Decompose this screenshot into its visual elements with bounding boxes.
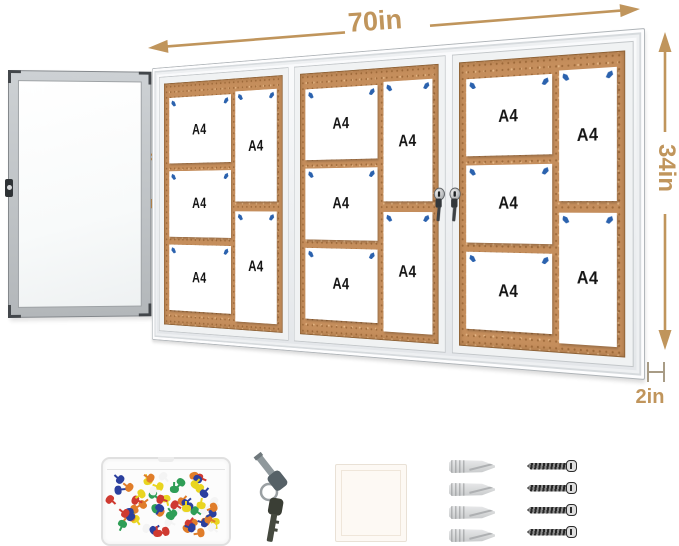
push-pin-icon xyxy=(223,249,228,256)
a4-paper: A4 xyxy=(169,245,231,314)
wall-anchor xyxy=(449,483,495,496)
push-pin-icon xyxy=(386,215,392,222)
paper-label: A4 xyxy=(333,195,350,213)
cork-board: A4 A4 A4 A4 xyxy=(459,50,625,357)
push-pin-icon xyxy=(386,84,392,91)
cork-board: A4 A4 A4 A4 xyxy=(164,75,282,333)
depth-label: 2in xyxy=(626,386,674,409)
push-pin-icon xyxy=(606,70,613,78)
push-pin-icon xyxy=(562,73,569,81)
push-pin-icon xyxy=(369,88,375,95)
a4-paper: A4 xyxy=(466,164,552,244)
push-pin xyxy=(192,528,205,539)
cabinet-section: A4 A4 A4 A4 xyxy=(159,67,288,341)
paper-label: A4 xyxy=(498,194,518,214)
a4-paper: A4 xyxy=(559,67,617,201)
push-pin-icon xyxy=(542,167,549,175)
door-back-panel xyxy=(18,80,142,308)
paper-label: A4 xyxy=(577,268,599,289)
push-pin-icon xyxy=(308,92,313,99)
screw xyxy=(527,460,577,472)
push-pin-icon xyxy=(171,100,176,107)
push-pin xyxy=(152,525,162,538)
lock-pair xyxy=(433,188,464,225)
push-pin-icon xyxy=(269,214,274,221)
key-icon xyxy=(436,199,442,208)
width-label: 70in xyxy=(347,4,403,39)
a4-paper: A4 xyxy=(169,170,231,237)
keys xyxy=(252,444,298,546)
wall-anchor xyxy=(449,460,495,473)
push-pin-box-pins xyxy=(103,459,229,544)
push-pin-icon xyxy=(369,170,375,177)
cabinet-section: A4 A4 A4 A4 xyxy=(452,41,633,367)
screw xyxy=(527,482,577,494)
push-pin-icon xyxy=(171,247,176,253)
push-pin-icon xyxy=(223,97,228,104)
paper-label: A4 xyxy=(333,114,350,133)
key-icon xyxy=(451,199,457,208)
paper-label: A4 xyxy=(192,121,206,138)
push-pin-box xyxy=(101,457,231,546)
push-pin-icon xyxy=(469,168,475,175)
door-corner-bracket xyxy=(8,70,21,83)
a4-paper: A4 xyxy=(559,213,617,347)
a4-paper: A4 xyxy=(235,211,276,324)
paper-label: A4 xyxy=(192,196,206,213)
paper-label: A4 xyxy=(192,270,206,287)
paper-label: A4 xyxy=(577,124,599,145)
cork-board: A4 A4 A4 A4 xyxy=(300,64,439,344)
cabinet-section: A4 A4 A4 A4 xyxy=(294,55,446,353)
push-pin-icon xyxy=(369,252,375,259)
door-corner-bracket xyxy=(139,72,152,85)
door-lock-with-key xyxy=(433,188,444,224)
door-corner-bracket xyxy=(8,305,21,318)
paper-label: A4 xyxy=(248,137,263,155)
door-corner-bracket xyxy=(139,303,152,316)
push-pin-icon xyxy=(238,214,243,221)
paper-label: A4 xyxy=(498,282,518,303)
depth-bracket-icon xyxy=(647,362,665,382)
push-pin-icon xyxy=(469,255,475,263)
product-diagram: 70in 34in 2in 180° xyxy=(0,0,679,546)
push-pin-icon xyxy=(238,94,243,101)
a4-paper: A4 xyxy=(383,79,432,201)
push-pin xyxy=(104,494,119,509)
push-pin-icon xyxy=(423,82,429,90)
push-pin xyxy=(114,485,127,495)
white-card xyxy=(335,464,407,542)
paper-label: A4 xyxy=(398,131,416,150)
push-pin-icon xyxy=(542,77,549,85)
push-pin-icon xyxy=(542,257,549,265)
height-label: 34in xyxy=(652,136,679,200)
bulletin-board-cabinet: A4 A4 A4 A4 xyxy=(152,28,645,380)
door-lock-with-key xyxy=(449,188,460,225)
a4-paper: A4 xyxy=(466,252,552,334)
screw xyxy=(527,526,577,538)
paper-label: A4 xyxy=(333,275,350,294)
push-pin-icon xyxy=(308,251,313,258)
push-pin xyxy=(115,519,128,534)
wall-anchor xyxy=(449,506,495,519)
a4-paper: A4 xyxy=(306,85,378,160)
push-pin xyxy=(182,500,191,512)
paper-label: A4 xyxy=(498,106,518,127)
push-pin-icon xyxy=(423,215,429,222)
push-pin-icon xyxy=(469,82,475,90)
a4-paper: A4 xyxy=(235,89,276,201)
a4-paper: A4 xyxy=(306,168,378,241)
screws xyxy=(527,460,577,538)
push-pin-icon xyxy=(308,171,313,178)
a4-paper: A4 xyxy=(169,95,231,164)
open-door xyxy=(8,70,151,318)
paper-label: A4 xyxy=(248,258,263,276)
push-pin-icon xyxy=(171,174,176,180)
push-pin-icon xyxy=(606,216,613,224)
a4-paper: A4 xyxy=(383,212,432,334)
door-lock xyxy=(5,179,13,197)
screw xyxy=(527,504,577,516)
push-pin-icon xyxy=(223,173,228,180)
a4-paper: A4 xyxy=(306,248,378,323)
a4-paper: A4 xyxy=(466,74,552,156)
wall-anchors xyxy=(449,460,495,542)
push-pin-icon xyxy=(269,92,274,99)
wall-anchor xyxy=(449,529,495,542)
push-pin-icon xyxy=(562,216,569,224)
paper-label: A4 xyxy=(398,263,416,282)
